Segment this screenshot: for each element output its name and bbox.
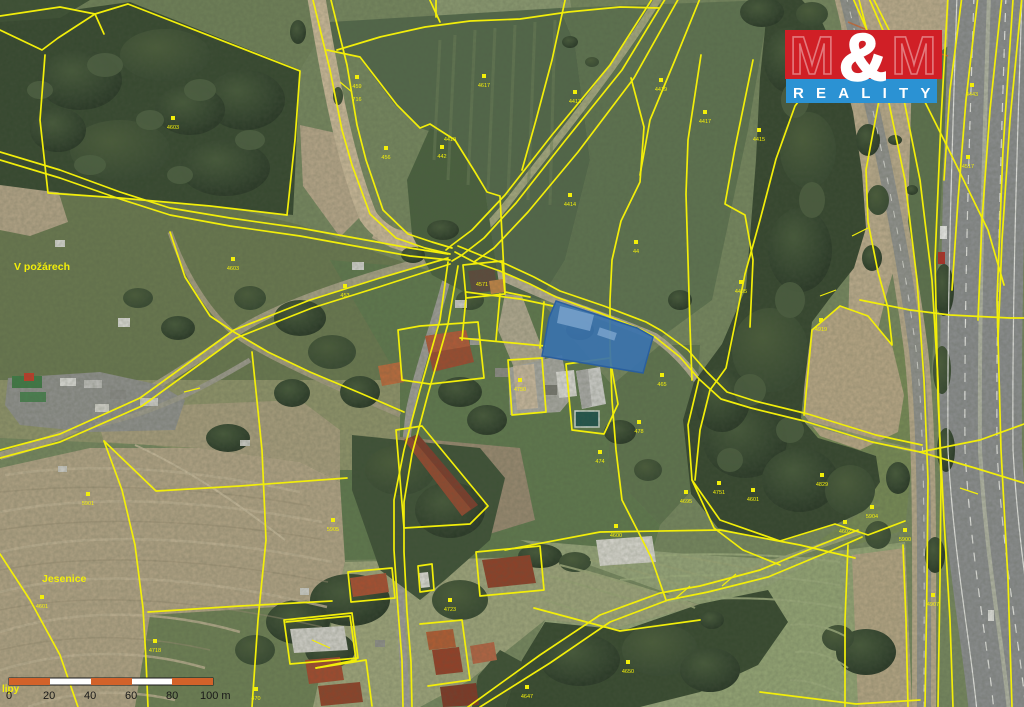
svg-text:4907: 4907 xyxy=(927,602,939,608)
svg-text:4617: 4617 xyxy=(478,83,490,89)
svg-text:4571: 4571 xyxy=(476,282,488,288)
svg-text:4723: 4723 xyxy=(444,607,456,613)
svg-text:5901: 5901 xyxy=(82,501,94,507)
svg-text:5900: 5900 xyxy=(899,537,911,543)
svg-text:REALITY: REALITY xyxy=(793,85,943,102)
svg-text:442: 442 xyxy=(437,154,446,160)
svg-text:4517: 4517 xyxy=(962,164,974,170)
svg-text:4829: 4829 xyxy=(816,482,828,488)
svg-text:M: M xyxy=(892,26,937,86)
svg-text:4919: 4919 xyxy=(815,327,827,333)
svg-text:4410: 4410 xyxy=(444,137,456,143)
svg-text:4443: 4443 xyxy=(966,92,978,98)
svg-text:716: 716 xyxy=(352,97,361,103)
svg-text:4603: 4603 xyxy=(167,125,179,131)
svg-text:4695: 4695 xyxy=(680,499,692,505)
svg-text:4650: 4650 xyxy=(622,669,634,675)
svg-text:459: 459 xyxy=(352,84,361,90)
svg-text:4718: 4718 xyxy=(149,648,161,654)
svg-text:60: 60 xyxy=(125,690,137,702)
svg-text:4603: 4603 xyxy=(227,266,239,272)
svg-text:M: M xyxy=(790,26,835,86)
svg-text:470: 470 xyxy=(251,696,260,702)
svg-text:4647: 4647 xyxy=(521,694,533,700)
svg-text:4601: 4601 xyxy=(36,604,48,610)
svg-text:V požárech: V požárech xyxy=(14,261,70,273)
svg-text:4750: 4750 xyxy=(514,387,526,393)
svg-text:4414: 4414 xyxy=(564,202,576,208)
svg-text:4601: 4601 xyxy=(747,497,759,503)
svg-text:40: 40 xyxy=(84,690,96,702)
svg-text:20: 20 xyxy=(43,690,55,702)
svg-text:5905: 5905 xyxy=(327,527,339,533)
svg-text:4415: 4415 xyxy=(753,137,765,143)
svg-text:474: 474 xyxy=(595,459,604,465)
svg-text:478: 478 xyxy=(634,429,643,435)
svg-text:465: 465 xyxy=(657,382,666,388)
svg-text:100 m: 100 m xyxy=(200,690,231,702)
svg-text:44: 44 xyxy=(633,249,639,255)
svg-text:&: & xyxy=(839,20,887,94)
svg-text:456: 456 xyxy=(381,155,390,161)
svg-text:4751: 4751 xyxy=(713,490,725,496)
svg-text:0: 0 xyxy=(6,690,12,702)
svg-text:4600: 4600 xyxy=(610,533,622,539)
svg-text:4405: 4405 xyxy=(735,289,747,295)
svg-text:4602: 4602 xyxy=(839,529,851,535)
svg-text:4413: 4413 xyxy=(569,99,581,105)
svg-text:5904: 5904 xyxy=(866,514,878,520)
svg-text:4419: 4419 xyxy=(655,87,667,93)
svg-text:Jesenice: Jesenice xyxy=(42,573,87,585)
svg-text:453: 453 xyxy=(340,293,349,299)
svg-text:4417: 4417 xyxy=(699,119,711,125)
svg-text:80: 80 xyxy=(166,690,178,702)
